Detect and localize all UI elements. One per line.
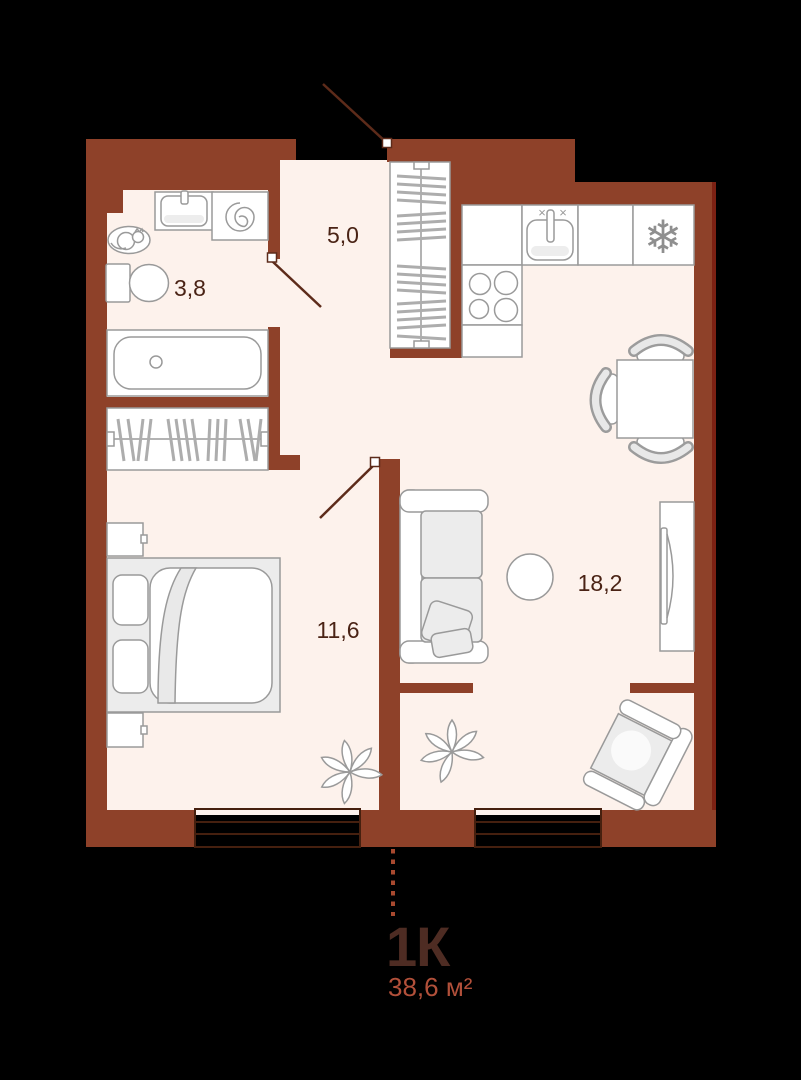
burner: [470, 300, 489, 319]
kitchen-sink-shading: [531, 246, 569, 256]
wall-bottom-left: [86, 810, 195, 847]
wall-left-step: [86, 190, 123, 213]
burner: [495, 272, 518, 295]
faucet-cross-right-icon: ×: [559, 205, 567, 220]
burner: [470, 274, 491, 295]
hallway-area-label: 5,0: [327, 222, 359, 248]
living-area-label: 18,2: [578, 570, 623, 596]
nightstand-knob: [141, 535, 147, 543]
wall-wardrobe-right: [450, 162, 462, 358]
wall-stub-right: [630, 683, 694, 693]
plan-type-label: 1К: [386, 915, 451, 978]
tv-stand: [660, 502, 694, 651]
floor-plan-page: × × ❄: [0, 0, 801, 1080]
wall-bottom-middle: [360, 810, 475, 847]
plan-total-area: 38,6 м²: [388, 972, 473, 1002]
wall-bathroom-right-lower: [268, 327, 280, 470]
wall-bathroom-top: [86, 139, 280, 190]
bathroom-door-hinge: [268, 253, 277, 262]
cat-bed: [108, 227, 150, 254]
bed: [107, 558, 280, 712]
entrance-door-leaf: [323, 84, 387, 143]
wall-shaft: [450, 139, 575, 205]
kitchen-cabinet-corner: [462, 205, 522, 265]
wall-bathroom-bottom: [107, 397, 268, 408]
nightstand-top: [107, 523, 143, 556]
wall-left: [86, 139, 107, 847]
wall-right-edge: [712, 182, 716, 847]
entrance-door-hinge: [383, 139, 392, 148]
kitchen-faucet: [547, 210, 554, 242]
bedroom-area-label: 11,6: [316, 617, 359, 643]
dining-table: [617, 360, 693, 438]
bathtub: [107, 330, 268, 396]
floor-plan: × × ❄: [0, 0, 801, 1080]
toilet: [106, 264, 169, 302]
kitchen-cabinet-low: [462, 325, 522, 357]
sofa: [400, 490, 488, 663]
sink-faucet: [181, 191, 188, 204]
wall-entry-left: [280, 139, 296, 160]
title-block: 1К 38,6 м²: [386, 849, 473, 1002]
wall-closet-stub: [280, 455, 300, 470]
wall-bathroom-right-upper: [268, 190, 280, 259]
bedroom-door-hinge: [371, 458, 380, 467]
wall-entry-right: [387, 139, 450, 162]
pillow: [113, 640, 148, 693]
entry-wardrobe: [390, 162, 450, 348]
kitchen-cabinet: [578, 205, 633, 265]
snowflake-icon: ❄: [644, 210, 683, 264]
nightstand-knob: [141, 726, 147, 734]
wall-partition: [379, 459, 400, 847]
tv: [661, 528, 667, 624]
burner: [495, 299, 518, 322]
faucet-cross-left-icon: ×: [538, 205, 546, 220]
pillow: [113, 575, 148, 625]
wall-wardrobe-bottom: [390, 348, 462, 358]
bathroom-area-label: 3,8: [174, 275, 206, 301]
bedroom-closet: [107, 408, 268, 470]
sink-shading: [164, 215, 204, 223]
coffee-table: [507, 554, 553, 600]
nightstand-bottom: [107, 713, 143, 747]
wall-stub-left: [390, 683, 473, 693]
wall-bottom-right: [601, 810, 716, 847]
